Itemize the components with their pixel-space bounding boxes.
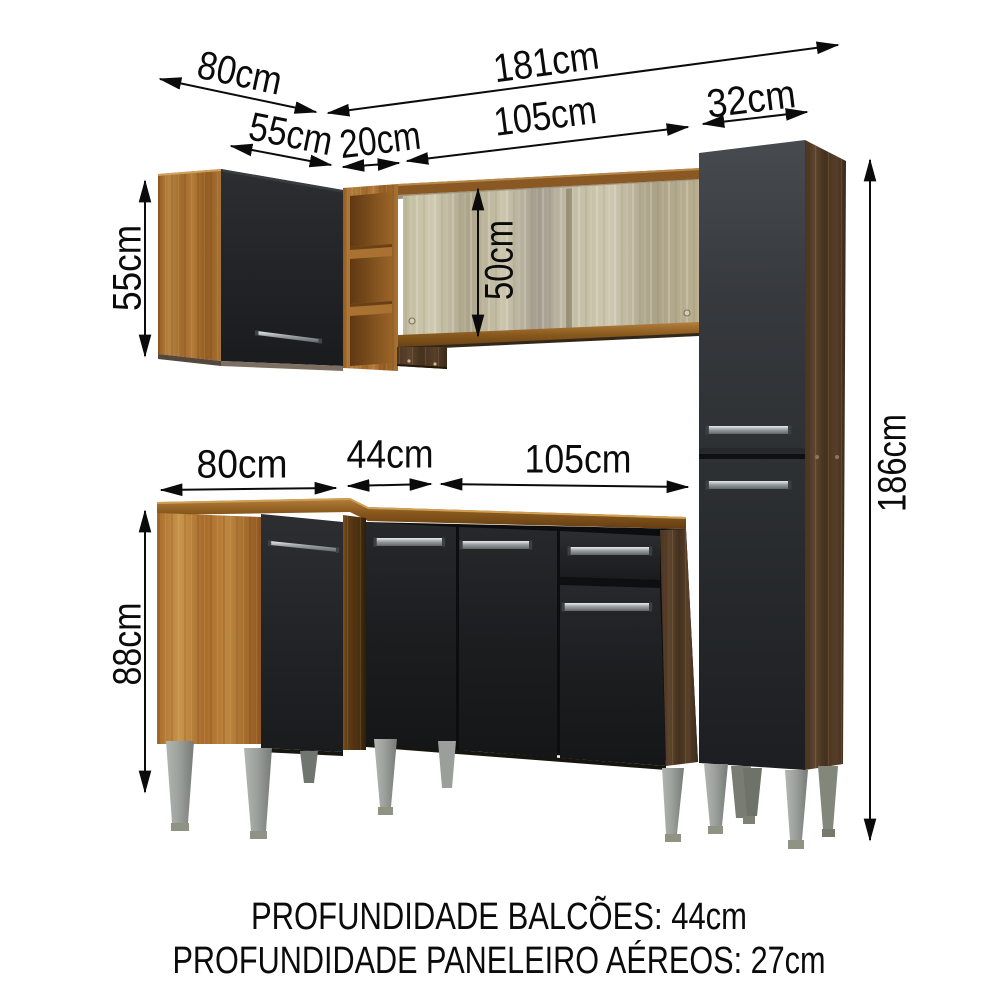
svg-text:PROFUNDIDADE BALCÕES: 44cm: PROFUNDIDADE BALCÕES: 44cm [251, 894, 747, 938]
svg-text:80cm: 80cm [197, 442, 288, 486]
svg-text:44cm: 44cm [347, 432, 434, 476]
svg-text:55cm: 55cm [105, 225, 149, 311]
svg-text:PROFUNDIDADE PANELEIRO AÉREOS:: PROFUNDIDADE PANELEIRO AÉREOS: 27cm [173, 939, 826, 982]
svg-text:88cm: 88cm [105, 603, 149, 686]
svg-text:105cm: 105cm [525, 437, 632, 481]
svg-text:50cm: 50cm [477, 220, 521, 300]
svg-text:186cm: 186cm [870, 414, 914, 512]
